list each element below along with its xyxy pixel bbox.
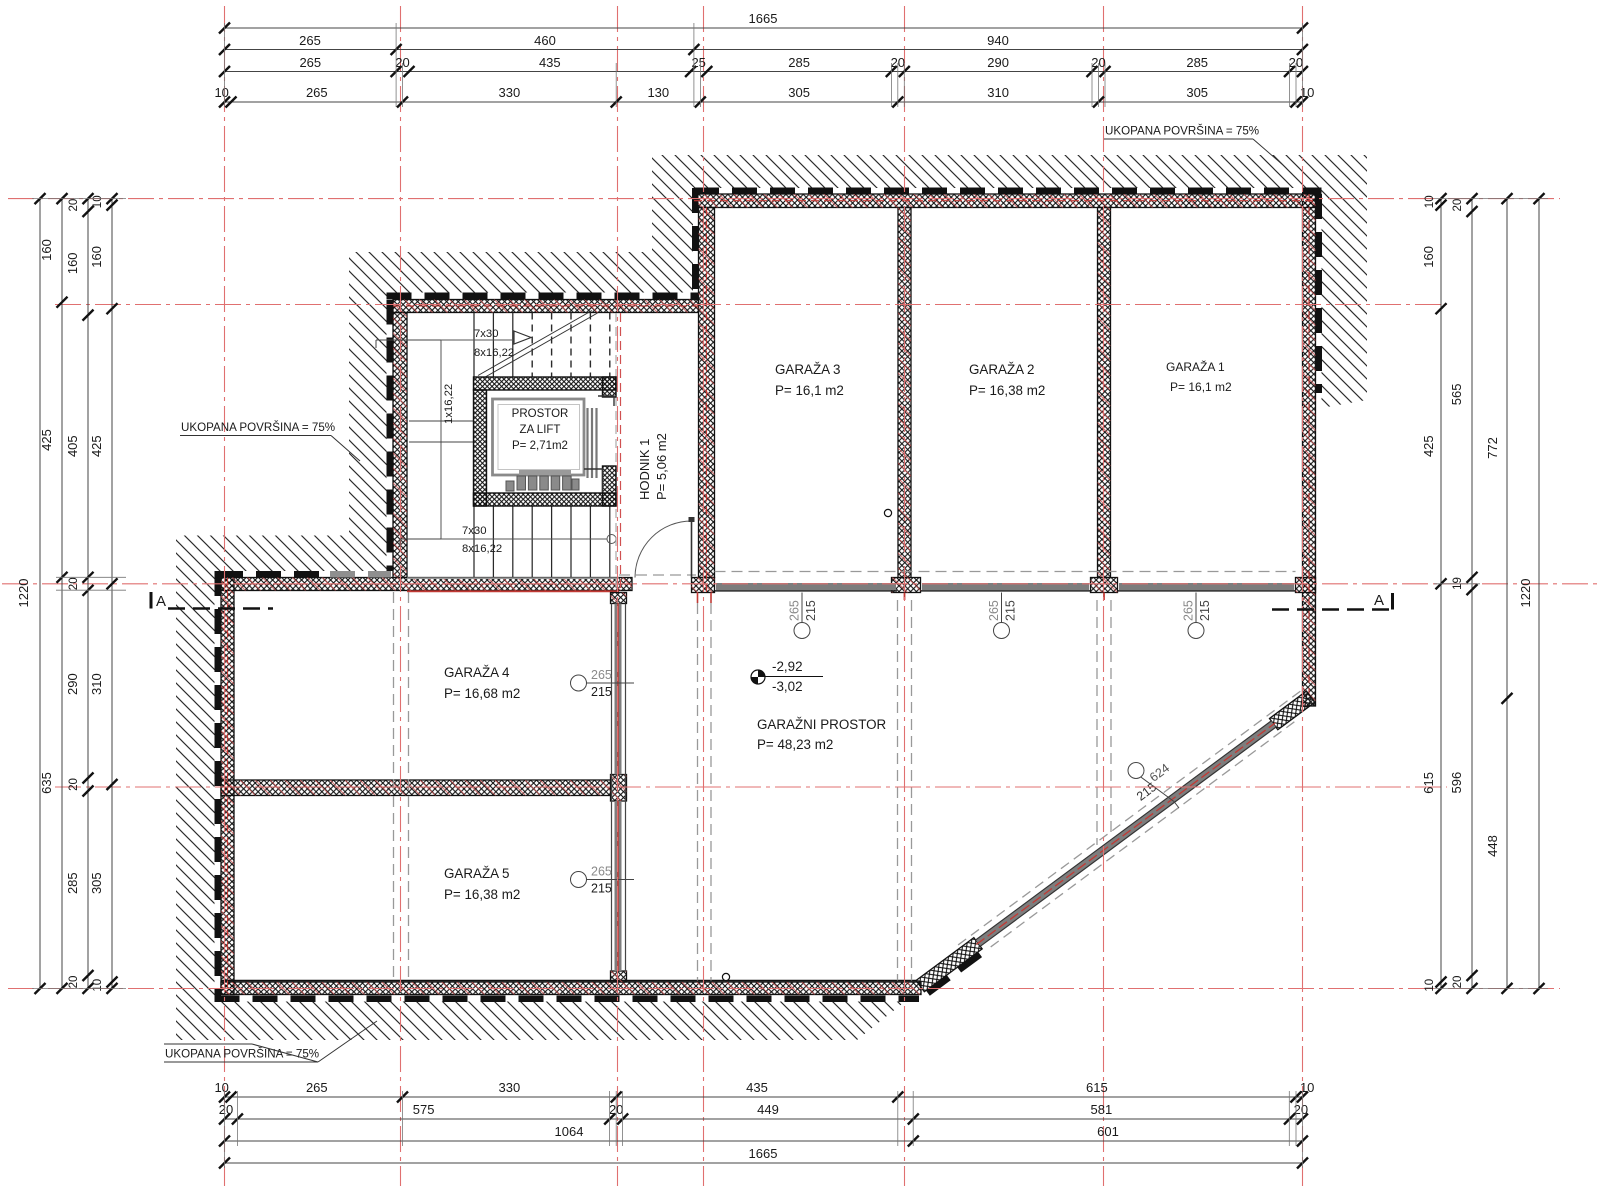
svg-text:215: 215 — [804, 600, 818, 621]
svg-text:305: 305 — [1186, 85, 1208, 100]
svg-text:-3,02: -3,02 — [772, 679, 803, 694]
svg-text:1220: 1220 — [16, 579, 31, 608]
svg-text:425: 425 — [89, 435, 104, 457]
svg-text:UKOPANA POVRŠINA = 75%: UKOPANA POVRŠINA = 75% — [165, 1048, 319, 1061]
svg-text:GARAŽA 4: GARAŽA 4 — [444, 665, 510, 680]
svg-text:460: 460 — [534, 33, 556, 48]
svg-text:P= 5,06 m2: P= 5,06 m2 — [654, 433, 669, 500]
svg-text:448: 448 — [1485, 835, 1500, 857]
svg-text:130: 130 — [647, 85, 669, 100]
svg-text:-2,92: -2,92 — [772, 659, 803, 674]
svg-text:160: 160 — [89, 246, 104, 268]
svg-text:P= 16,38 m2: P= 16,38 m2 — [444, 887, 520, 902]
svg-text:305: 305 — [788, 85, 810, 100]
svg-text:435: 435 — [539, 55, 561, 70]
svg-text:20: 20 — [68, 778, 80, 791]
svg-text:285: 285 — [65, 872, 80, 894]
svg-text:330: 330 — [499, 1080, 521, 1095]
svg-text:265: 265 — [306, 85, 328, 100]
svg-text:425: 425 — [39, 429, 54, 451]
svg-text:1220: 1220 — [1518, 579, 1533, 608]
svg-text:160: 160 — [39, 239, 54, 261]
svg-text:449: 449 — [757, 1102, 779, 1117]
svg-text:160: 160 — [65, 252, 80, 274]
svg-text:601: 601 — [1097, 1124, 1119, 1139]
svg-text:581: 581 — [1091, 1102, 1113, 1117]
svg-text:P= 16,68 m2: P= 16,68 m2 — [444, 686, 520, 701]
svg-text:285: 285 — [1186, 55, 1208, 70]
svg-text:1064: 1064 — [555, 1124, 584, 1139]
svg-text:P= 48,23 m2: P= 48,23 m2 — [757, 737, 833, 752]
svg-text:GARAŽA 2: GARAŽA 2 — [969, 362, 1035, 377]
svg-text:P= 16,38 m2: P= 16,38 m2 — [969, 383, 1045, 398]
svg-text:GARAŽA 5: GARAŽA 5 — [444, 866, 510, 881]
svg-text:10: 10 — [1424, 979, 1436, 992]
svg-text:265: 265 — [591, 668, 612, 682]
svg-text:596: 596 — [1449, 772, 1464, 794]
svg-text:P= 2,71m2: P= 2,71m2 — [512, 440, 568, 452]
svg-text:285: 285 — [788, 55, 810, 70]
svg-text:PROSTOR: PROSTOR — [512, 408, 569, 420]
svg-text:215: 215 — [591, 882, 612, 896]
svg-text:615: 615 — [1086, 1080, 1108, 1095]
svg-text:10: 10 — [1424, 195, 1436, 208]
svg-text:GARAŽA 3: GARAŽA 3 — [775, 362, 841, 377]
svg-text:940: 940 — [987, 33, 1009, 48]
svg-text:7x30: 7x30 — [462, 525, 487, 537]
svg-text:UKOPANA POVRŠINA = 75%: UKOPANA POVRŠINA = 75% — [1105, 125, 1259, 138]
svg-text:435: 435 — [746, 1080, 768, 1095]
svg-text:290: 290 — [65, 673, 80, 695]
svg-text:305: 305 — [89, 872, 104, 894]
svg-text:10: 10 — [214, 1080, 228, 1095]
svg-text:A: A — [156, 593, 166, 610]
svg-text:1x16,22: 1x16,22 — [443, 384, 455, 424]
svg-text:565: 565 — [1449, 384, 1464, 406]
svg-text:GARAŽA 1: GARAŽA 1 — [1166, 359, 1225, 374]
svg-text:265: 265 — [591, 865, 612, 879]
svg-text:20: 20 — [68, 577, 80, 590]
svg-text:1665: 1665 — [749, 11, 778, 26]
svg-text:20: 20 — [68, 976, 80, 989]
svg-text:575: 575 — [413, 1102, 435, 1117]
svg-text:330: 330 — [499, 85, 521, 100]
svg-text:215: 215 — [1198, 600, 1212, 621]
svg-text:A: A — [1374, 592, 1384, 609]
svg-text:310: 310 — [987, 85, 1009, 100]
svg-text:215: 215 — [591, 685, 612, 699]
svg-text:215: 215 — [1004, 600, 1018, 621]
svg-text:8x16,22: 8x16,22 — [474, 347, 514, 359]
svg-text:265: 265 — [299, 55, 321, 70]
svg-text:HODNIK 1: HODNIK 1 — [637, 439, 652, 500]
svg-text:20: 20 — [1452, 199, 1464, 212]
svg-text:20: 20 — [219, 1102, 233, 1117]
svg-text:160: 160 — [1421, 246, 1436, 268]
svg-text:P= 16,1 m2: P= 16,1 m2 — [775, 383, 844, 398]
svg-text:310: 310 — [89, 673, 104, 695]
svg-text:425: 425 — [1421, 435, 1436, 457]
svg-text:20: 20 — [68, 199, 80, 212]
svg-text:635: 635 — [39, 772, 54, 794]
svg-text:1665: 1665 — [749, 1146, 778, 1161]
svg-text:10: 10 — [214, 85, 228, 100]
svg-text:615: 615 — [1421, 772, 1436, 794]
svg-text:265: 265 — [788, 600, 802, 621]
svg-text:20: 20 — [1452, 976, 1464, 989]
svg-text:265: 265 — [299, 33, 321, 48]
svg-text:GARAŽNI PROSTOR: GARAŽNI PROSTOR — [757, 717, 887, 732]
svg-text:10: 10 — [92, 195, 104, 208]
svg-text:772: 772 — [1485, 437, 1500, 459]
svg-text:265: 265 — [1182, 600, 1196, 621]
svg-text:UKOPANA POVRŠINA = 75%: UKOPANA POVRŠINA = 75% — [181, 421, 335, 434]
svg-text:8x16,22: 8x16,22 — [462, 543, 502, 555]
svg-text:290: 290 — [987, 55, 1009, 70]
svg-text:10: 10 — [92, 979, 104, 992]
svg-text:7x30: 7x30 — [474, 328, 499, 340]
svg-text:405: 405 — [65, 435, 80, 457]
svg-text:265: 265 — [987, 600, 1001, 621]
svg-text:ZA LIFT: ZA LIFT — [520, 424, 561, 436]
svg-text:265: 265 — [306, 1080, 328, 1095]
svg-text:P= 16,1 m2: P= 16,1 m2 — [1170, 380, 1232, 394]
